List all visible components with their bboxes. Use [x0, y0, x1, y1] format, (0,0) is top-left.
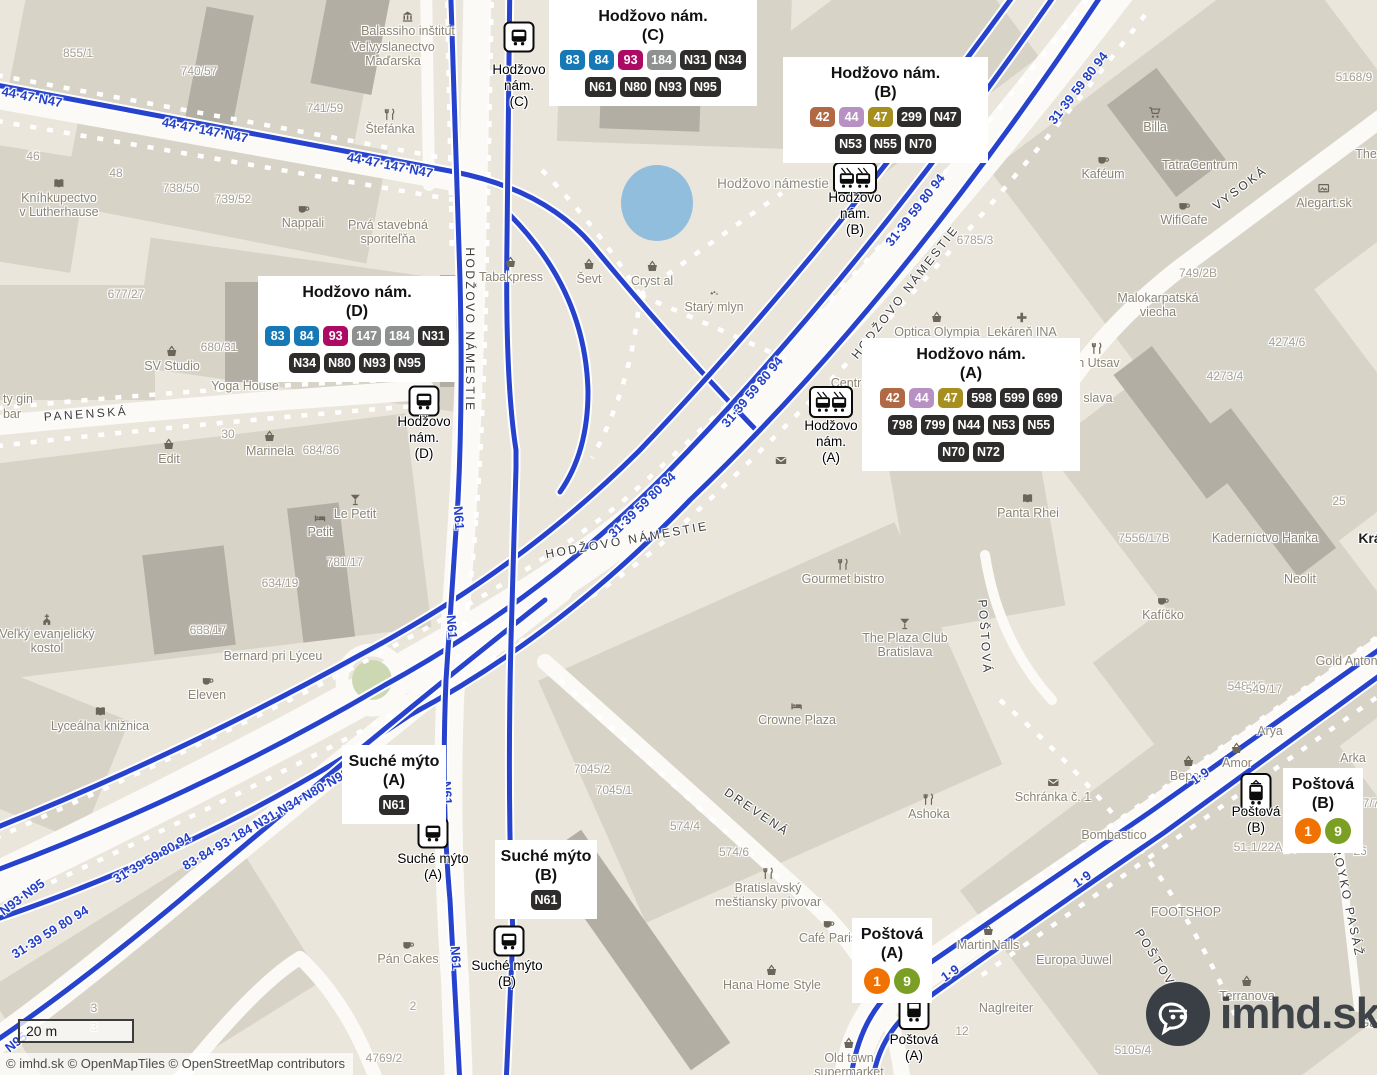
route-badge-N53[interactable]: N53 [988, 415, 1019, 435]
restaurant-icon [922, 793, 935, 806]
house-number: 25 [1332, 494, 1345, 508]
poi-label: Veľký evanjelickýkostol [0, 613, 95, 655]
stop-marker-label: Poštová(A) [890, 1032, 939, 1064]
bus-stop-icon[interactable] [409, 386, 440, 417]
book-icon [1021, 492, 1034, 505]
route-badge-799[interactable]: 799 [921, 415, 950, 435]
restaurant-icon [836, 558, 849, 571]
route-badge-798[interactable]: 798 [888, 415, 917, 435]
poi-label: slava [1083, 391, 1112, 405]
cafe-icon [1157, 594, 1170, 607]
route-badge-N80[interactable]: N80 [620, 77, 651, 97]
cafe-icon [821, 917, 834, 930]
route-badge-N61[interactable]: N61 [531, 890, 562, 910]
restaurant-icon [1091, 342, 1104, 355]
house-number: 4274/6 [1269, 335, 1306, 349]
route-badge-1[interactable]: 1 [1295, 818, 1321, 844]
poi-label: Kníhkupectvov Lutherhause [19, 177, 98, 219]
route-badge-147[interactable]: 147 [352, 326, 381, 346]
stop-info-box-suche-myto-a: Suché mýto(A)N61 [342, 745, 446, 824]
imhd-logo-text: imhd.sk [1220, 989, 1377, 1039]
shop-icon [582, 258, 595, 271]
house-number: 549/17 [1246, 682, 1283, 696]
shop-icon [1182, 755, 1195, 768]
poi-label: Optica Olympia [894, 311, 979, 339]
stop-box-title: Hodžovo nám. [787, 64, 984, 83]
route-badge-N31[interactable]: N31 [418, 326, 449, 346]
stop-marker-label: Suché mýto(A) [397, 851, 468, 883]
cafe-icon [1177, 199, 1190, 212]
route-badge-N70[interactable]: N70 [905, 134, 936, 154]
monument-icon [707, 286, 720, 299]
poi-label: Old townsupermarket [814, 1037, 883, 1075]
shop-icon [166, 345, 179, 358]
house-number: 7045/2 [574, 762, 611, 776]
poi-label: Edit [158, 438, 180, 466]
poi-label: Bernard pri Lýceu [224, 649, 323, 663]
stop-box-title: Suché mýto [346, 752, 442, 771]
poi-label: WifiCafe [1160, 199, 1207, 227]
poi-label: VeľvyslanectvoMaďarska [351, 40, 435, 68]
cafe-icon [296, 202, 309, 215]
street-name-label: HODŽOVO NÁMESTIE [463, 247, 477, 412]
poi-label: Arka [1340, 751, 1366, 765]
route-badge-N31[interactable]: N31 [680, 50, 711, 70]
poi-label: Kaderníctvo Hanka [1212, 531, 1318, 545]
house-number: 7556/17B [1118, 531, 1169, 545]
stop-info-box-hodzovo-a: Hodžovo nám.(A)424447598599699798799N44N… [862, 338, 1080, 471]
stop-info-box-hodzovo-b: Hodžovo nám.(B)424447299N47N53N55N70 [783, 57, 988, 163]
imhd-logo-icon [1146, 982, 1210, 1046]
route-badge-N93[interactable]: N93 [359, 353, 390, 373]
poi-label: Gold Antoni [1316, 654, 1377, 668]
poi-label: FOOTSHOP [1151, 905, 1221, 919]
house-number: 7/7 [1363, 796, 1377, 810]
route-badge-599[interactable]: 599 [1000, 388, 1029, 408]
route-badge-9[interactable]: 9 [894, 968, 920, 994]
art-icon [1318, 182, 1331, 195]
route-number-label: N61 [444, 615, 461, 640]
house-number: 30 [221, 427, 234, 441]
route-badge-N95[interactable]: N95 [394, 353, 425, 373]
poi-label: Neolit [1284, 572, 1316, 586]
poi-label: ty gin [3, 392, 33, 406]
route-badge-N72[interactable]: N72 [973, 442, 1004, 462]
poi-label: TatraCentrum [1162, 158, 1238, 172]
poi-label: Kaféum [1081, 153, 1124, 181]
house-number: 684/36 [303, 443, 340, 457]
stop-box-title: Poštová [856, 925, 928, 944]
shop-icon [646, 260, 659, 273]
route-badge-N80[interactable]: N80 [324, 353, 355, 373]
stop-box-title: Suché mýto [499, 847, 593, 866]
route-badge-N34[interactable]: N34 [289, 353, 320, 373]
route-badge-47[interactable]: 47 [868, 107, 893, 127]
pond [621, 165, 693, 241]
stop-box-platform: (B) [499, 866, 593, 885]
route-badge-N70[interactable]: N70 [938, 442, 969, 462]
poi-label: Billa [1143, 106, 1167, 134]
route-badge-93[interactable]: 93 [618, 50, 643, 70]
route-badge-184[interactable]: 184 [385, 326, 414, 346]
house-number: 633/17 [190, 623, 227, 637]
stop-box-platform: (B) [1287, 794, 1359, 813]
poi-label: Marinela [246, 430, 294, 458]
poi-label: SV Studio [144, 345, 200, 373]
house-number: 749/2B [1179, 266, 1217, 280]
map-attribution[interactable]: © imhd.sk © OpenMapTiles © OpenStreetMap… [0, 1053, 353, 1075]
trolleybus-stop-icon[interactable] [809, 386, 853, 418]
poi-label: Le Petit [334, 493, 376, 521]
stop-box-platform: (C) [553, 26, 753, 45]
stop-marker-label: Hodžovonám.(C) [492, 62, 545, 110]
poi-label: Ashoka [908, 793, 950, 821]
poi-label: Pán Cakes [377, 938, 438, 966]
route-badge-93[interactable]: 93 [323, 326, 348, 346]
poi-label: Crowne Plaza [758, 699, 836, 727]
house-number: 48 [109, 166, 122, 180]
house-number: 7045/1 [596, 783, 633, 797]
route-badge-699[interactable]: 699 [1033, 388, 1062, 408]
stop-info-box-hodzovo-d: Hodžovo nám.(D)838493147184N31N34N80N93N… [258, 276, 456, 382]
route-number-label: N61 [451, 506, 468, 531]
church-icon [40, 613, 53, 626]
route-badge-N53[interactable]: N53 [835, 134, 866, 154]
route-badge-84[interactable]: 84 [294, 326, 319, 346]
street-name-label: Krá [1358, 531, 1377, 545]
route-badge-44[interactable]: 44 [839, 107, 864, 127]
poi-label: Bratislavskýmeštiansky pivovar [715, 867, 821, 909]
house-number: 677/27 [108, 287, 145, 301]
shop-icon [981, 924, 994, 937]
stop-info-box-postova-a: Poštová(A)19 [852, 918, 932, 1003]
stop-box-platform: (A) [346, 771, 442, 790]
poi-label: Gourmet bistro [802, 558, 885, 586]
scale-label: 20 m [26, 1023, 57, 1039]
poi-label: Nappali [282, 202, 324, 230]
mail-icon [775, 454, 788, 467]
poi-label: Prvá stavebnásporiteľňa [348, 218, 428, 246]
book-icon [52, 177, 65, 190]
route-number-label: N61 [448, 946, 464, 971]
house-number: 46 [26, 149, 39, 163]
house-number: 680/31 [201, 340, 238, 354]
stop-marker-label: Poštová(B) [1232, 804, 1281, 836]
bank-icon [402, 10, 415, 23]
stop-marker-label: Hodžovonám.(D) [397, 414, 450, 462]
poi-label: Lyceálna knižnica [51, 705, 149, 733]
cafe-icon [200, 674, 213, 687]
restaurant-icon [384, 108, 397, 121]
cafe-icon [1097, 153, 1110, 166]
poi-label: bar [3, 407, 21, 421]
poi-label: Štefánka [365, 108, 414, 136]
stop-box-platform: (A) [856, 944, 928, 963]
stop-info-box-suche-myto-b: Suché mýto(B)N61 [495, 840, 597, 919]
poi-label: Lekáreň INA [987, 311, 1056, 339]
stop-box-title: Hodžovo nám. [262, 283, 452, 302]
stop-marker-label: Hodžovonám.(B) [828, 190, 881, 238]
poi-label: Hodžovo námestie [717, 177, 829, 191]
mail-icon [1047, 776, 1060, 789]
house-number: 739/52 [215, 192, 252, 206]
stop-box-title: Hodžovo nám. [866, 345, 1076, 364]
poi-label: Bombastico [1081, 828, 1146, 842]
poi-label: Café Paris [799, 917, 857, 945]
route-badge-N95[interactable]: N95 [690, 77, 721, 97]
hotel-icon [313, 511, 326, 524]
shop-icon [766, 964, 779, 977]
house-number: 51-1/22A [1234, 840, 1283, 854]
cart-icon [1149, 106, 1162, 119]
poi-label: Ševt [576, 258, 601, 286]
stop-marker-label: Suché mýto(B) [471, 958, 542, 990]
poi-label: Kafíčko [1142, 594, 1184, 622]
route-badge-83[interactable]: 83 [265, 326, 290, 346]
poi-label: Alegart.sk [1296, 182, 1352, 210]
stop-info-box-hodzovo-c: Hodžovo nám.(C)838493184N31N34N61N80N93N… [549, 0, 757, 106]
poi-label: The Plaza ClubBratislava [862, 617, 947, 659]
poi-label: Schránka č. 1 [1015, 776, 1091, 804]
cafe-icon [402, 938, 415, 951]
stop-box-platform: (D) [262, 302, 452, 321]
bar-icon [348, 493, 361, 506]
route-badge-N47[interactable]: N47 [930, 107, 961, 127]
route-badge-42[interactable]: 42 [810, 107, 835, 127]
bus-stop-icon[interactable] [504, 22, 535, 53]
shop-icon [264, 430, 277, 443]
route-badge-84[interactable]: 84 [589, 50, 614, 70]
shop-icon [930, 311, 943, 324]
bar-icon [899, 617, 912, 630]
house-number: 738/50 [163, 181, 200, 195]
map-canvas[interactable]: 855/1740/57Balassiho inštitútVeľvyslanec… [0, 0, 1377, 1075]
poi-label: Malokarpatskáviecha [1117, 291, 1198, 319]
house-number: 6785/3 [957, 233, 994, 247]
scale-bar: 20 m [18, 1019, 134, 1043]
route-badge-42[interactable]: 42 [880, 388, 905, 408]
poi-label: Hana Home Style [723, 964, 821, 992]
house-number: 574/6 [719, 845, 749, 859]
route-badge-N44[interactable]: N44 [953, 415, 984, 435]
shop-icon [505, 256, 518, 269]
route-badge-83[interactable]: 83 [560, 50, 585, 70]
shop-icon [162, 438, 175, 451]
route-badge-184[interactable]: 184 [647, 50, 676, 70]
route-badge-1[interactable]: 1 [864, 968, 890, 994]
route-badge-44[interactable]: 44 [909, 388, 934, 408]
house-number: 634/19 [262, 576, 299, 590]
imhd-logo: imhd.sk [1146, 982, 1377, 1046]
poi-label: Tabakpress [479, 256, 543, 284]
route-badge-N34[interactable]: N34 [715, 50, 746, 70]
poi-label: Petit [307, 511, 332, 539]
house-number: 5168/9 [1336, 70, 1373, 84]
route-badge-N55[interactable]: N55 [1023, 415, 1054, 435]
poi-label: Naglreiter [979, 1001, 1033, 1015]
poi-label: in Utsav [1074, 342, 1119, 370]
stop-box-title: Poštová [1287, 775, 1359, 794]
poi-label: Starý mlyn [684, 286, 743, 314]
poi-label: Panta Rhei [997, 492, 1059, 520]
house-number: 4273/4 [1207, 369, 1244, 383]
poi-label: Arya [1257, 724, 1283, 738]
route-badge-47[interactable]: 47 [938, 388, 963, 408]
route-badge-9[interactable]: 9 [1325, 818, 1351, 844]
house-number: 4769/2 [366, 1051, 403, 1065]
bus-stop-icon[interactable] [494, 926, 525, 957]
poi-label: Europa Juwel [1036, 953, 1112, 967]
poi-label: Cryst al [631, 260, 673, 288]
stop-box-platform: (B) [787, 83, 984, 102]
stop-box-title: Hodžovo nám. [553, 7, 753, 26]
house-number: 781/17 [327, 555, 364, 569]
book-icon [94, 705, 107, 718]
stop-marker-label: Hodžovonám.(A) [804, 418, 857, 466]
house-number: 2 [410, 999, 417, 1013]
poi-label: MartinNails [957, 924, 1020, 952]
route-badge-N61[interactable]: N61 [585, 77, 616, 97]
poi-label: Eleven [188, 674, 226, 702]
poi-label: Balassiho inštitút [361, 10, 455, 38]
poi-label: The [1355, 147, 1377, 161]
pharmacy-icon [1015, 311, 1028, 324]
poi-label [775, 454, 788, 468]
house-number: 3 [91, 1001, 98, 1015]
shop-icon [1231, 742, 1244, 755]
restaurant-icon [761, 867, 774, 880]
route-badge-N93[interactable]: N93 [655, 77, 686, 97]
route-badge-299[interactable]: 299 [897, 107, 926, 127]
house-number: 740/57 [181, 64, 218, 78]
poi-label: Amor [1222, 742, 1252, 770]
route-badge-N61[interactable]: N61 [379, 795, 410, 815]
hotel-icon [790, 699, 803, 712]
house-number: 574/4 [670, 819, 700, 833]
stop-info-box-postova-b: Poštová(B)19 [1283, 768, 1363, 853]
route-badge-N55[interactable]: N55 [870, 134, 901, 154]
house-number: 741/59 [307, 101, 344, 115]
stop-box-platform: (A) [866, 364, 1076, 383]
house-number: 12 [955, 1024, 968, 1038]
route-badge-598[interactable]: 598 [967, 388, 996, 408]
house-number: 855/1 [63, 46, 93, 60]
shop-icon [842, 1037, 855, 1050]
